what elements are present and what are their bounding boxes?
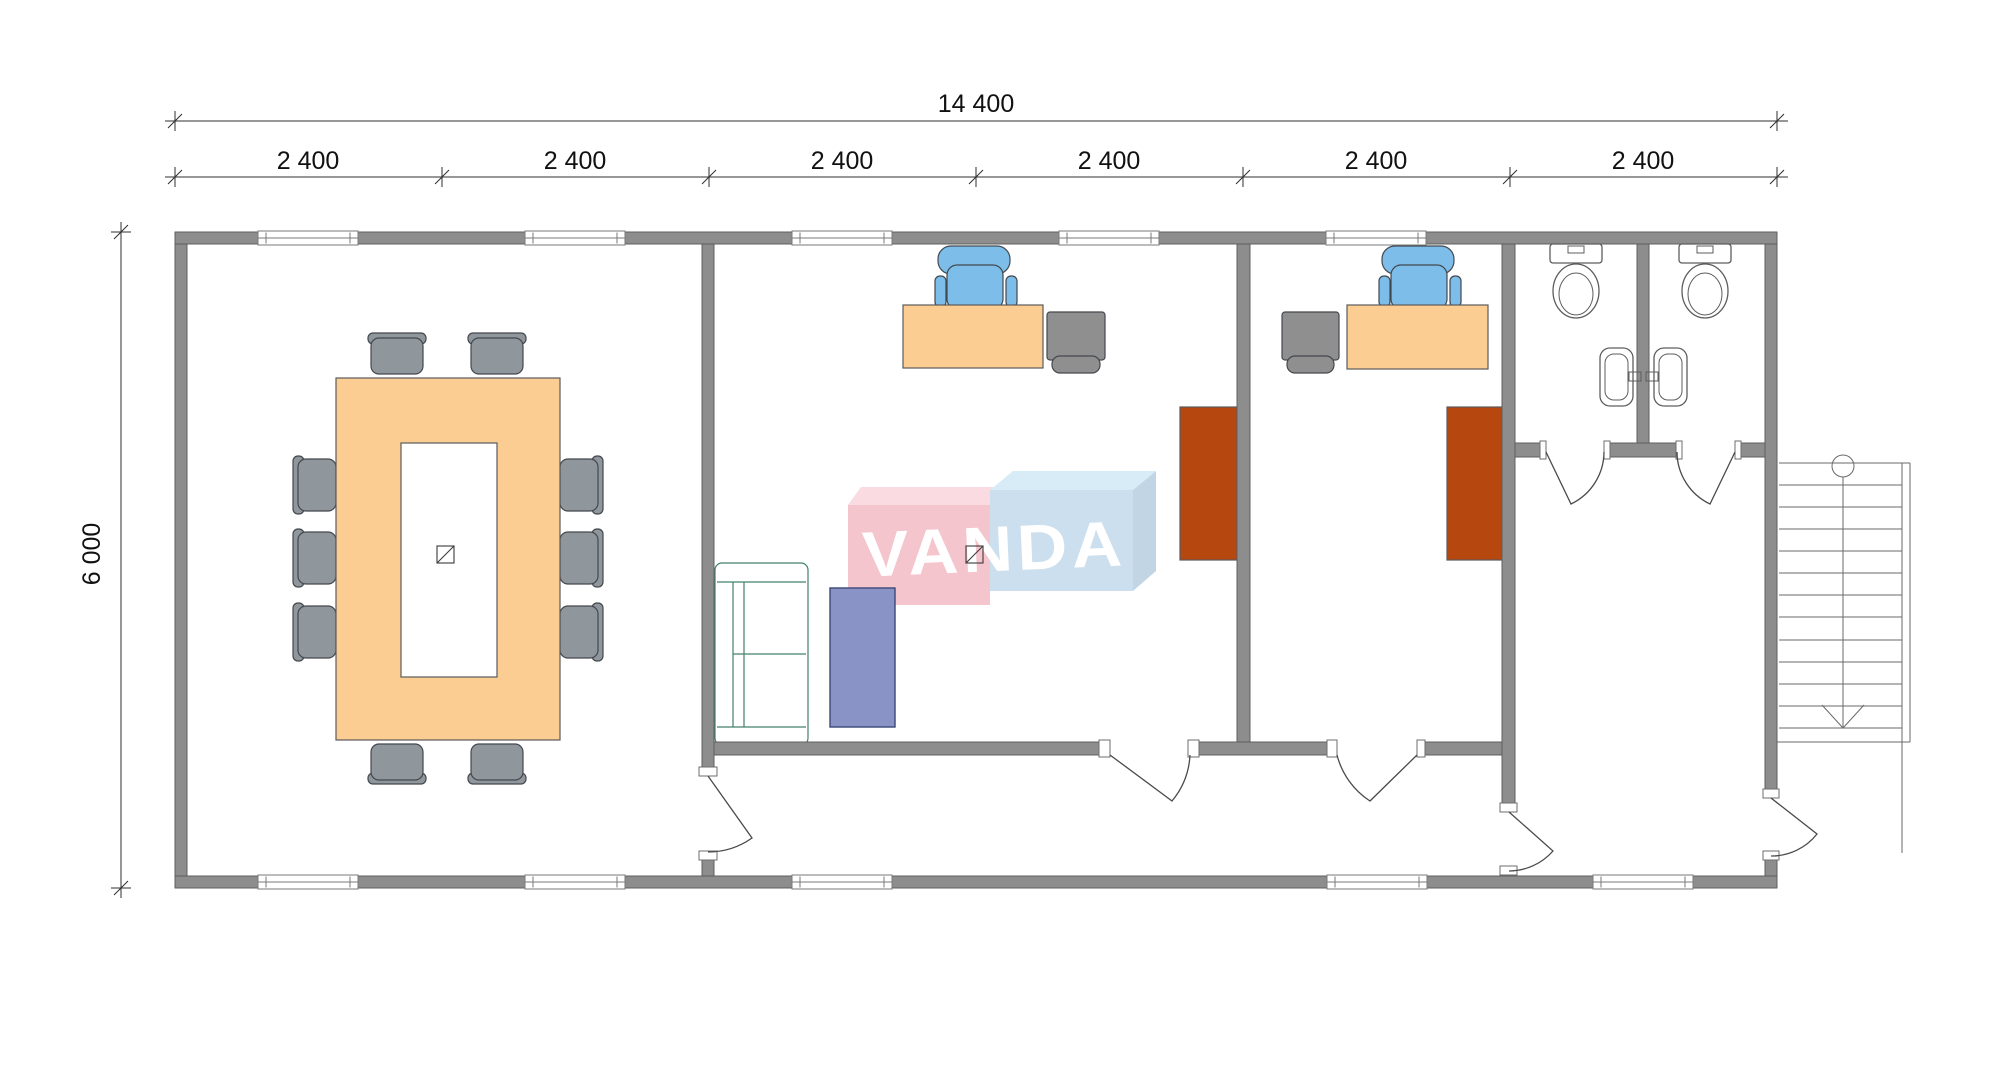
dimension-bay: 2 400 bbox=[544, 147, 607, 175]
corridor-wall bbox=[1425, 742, 1502, 755]
staircase bbox=[1777, 455, 1910, 853]
vanda-logo: VANDA bbox=[848, 471, 1156, 605]
task-chair-seat bbox=[947, 265, 1003, 309]
door-jamb bbox=[1763, 789, 1779, 798]
desk-office-1 bbox=[903, 305, 1043, 368]
chair-seat bbox=[560, 532, 598, 584]
exterior-wall-bottom bbox=[175, 876, 1777, 888]
stair-treads bbox=[1779, 463, 1902, 728]
chair-seat bbox=[371, 744, 423, 780]
door-conference bbox=[708, 776, 752, 852]
door-jamb bbox=[1500, 803, 1517, 812]
dimension-bay: 2 400 bbox=[811, 147, 874, 175]
corridor-wall bbox=[714, 742, 1099, 755]
wc-partition bbox=[1637, 244, 1649, 457]
chair-seat bbox=[471, 744, 523, 780]
wc-front-wall bbox=[1515, 443, 1540, 457]
door-exterior bbox=[1771, 798, 1817, 856]
task-chair-armrest bbox=[1006, 276, 1017, 307]
floor-plan-drawing: VANDA bbox=[0, 0, 2000, 1076]
door-jamb bbox=[1735, 441, 1741, 459]
drawer-unit-front bbox=[1052, 356, 1100, 373]
desks bbox=[903, 305, 1488, 369]
task-chair-armrest bbox=[1379, 276, 1390, 307]
stair-start-circle bbox=[1832, 455, 1854, 477]
chair-seat bbox=[560, 606, 598, 658]
dimension-total-width: 14 400 bbox=[938, 90, 1014, 118]
partition-conference-stub bbox=[702, 860, 714, 876]
logo-wordmark: VANDA bbox=[861, 507, 1128, 590]
toilet-bowl bbox=[1553, 264, 1599, 318]
door-jamb bbox=[1604, 441, 1610, 459]
coffee-table bbox=[830, 588, 895, 727]
sofa-cushion-lines bbox=[717, 582, 806, 727]
task-chair-armrest bbox=[1450, 276, 1461, 307]
partition-hallway bbox=[1502, 244, 1515, 803]
dimension-bay: 2 400 bbox=[1612, 147, 1675, 175]
sideboards bbox=[1180, 407, 1503, 560]
partition-office1-office2 bbox=[1237, 244, 1250, 742]
exterior-wall-left bbox=[175, 244, 187, 876]
door-jamb bbox=[699, 767, 717, 776]
door-office-2 bbox=[1337, 755, 1417, 801]
door-wc-2 bbox=[1677, 452, 1735, 504]
chair-seat bbox=[298, 532, 336, 584]
wc-front-wall bbox=[1610, 443, 1676, 457]
stair-direction-arrow bbox=[1822, 477, 1864, 728]
wc-front-wall bbox=[1741, 443, 1765, 457]
dimension-bay: 2 400 bbox=[1345, 147, 1408, 175]
dimension-bay: 2 400 bbox=[277, 147, 340, 175]
drawer-unit-office-2 bbox=[1282, 312, 1339, 360]
partition-conference bbox=[702, 244, 714, 767]
exterior-wall-right bbox=[1765, 244, 1777, 790]
sideboard-office-1 bbox=[1180, 407, 1237, 560]
chair-seat bbox=[298, 606, 336, 658]
desk-office-2 bbox=[1347, 305, 1488, 369]
sideboard-office-2 bbox=[1447, 407, 1503, 560]
conference-table-opening bbox=[401, 443, 497, 677]
chair-seat bbox=[371, 338, 423, 374]
door-jamb bbox=[1099, 740, 1110, 757]
logo-blue-side-face bbox=[1133, 471, 1156, 591]
task-chair-seat bbox=[1391, 265, 1447, 309]
logo-blue-top-face bbox=[990, 471, 1156, 490]
task-chairs bbox=[935, 246, 1461, 309]
conference-table bbox=[336, 378, 560, 740]
dimension-depth: 6 000 bbox=[78, 523, 106, 586]
chair-seat bbox=[471, 338, 523, 374]
chair-seat bbox=[298, 459, 336, 511]
toilet-bowl bbox=[1682, 264, 1728, 318]
logo-pink-top-face bbox=[848, 487, 1003, 505]
task-chair-armrest bbox=[935, 276, 946, 307]
door-office-1 bbox=[1110, 755, 1190, 801]
exterior-wall-right-stub bbox=[1765, 860, 1777, 876]
door-jamb bbox=[1327, 740, 1337, 757]
drawer-unit-office-1 bbox=[1047, 312, 1105, 360]
drawer-unit-front bbox=[1287, 356, 1334, 373]
chair-seat bbox=[560, 459, 598, 511]
door-hallway bbox=[1509, 812, 1553, 871]
exterior-wall-top bbox=[175, 232, 1777, 244]
corridor-wall bbox=[1199, 742, 1327, 755]
door-jamb bbox=[1417, 740, 1425, 757]
drawer-units bbox=[1047, 312, 1339, 373]
dimension-bay: 2 400 bbox=[1078, 147, 1141, 175]
door-jamb bbox=[1188, 740, 1199, 757]
sofa bbox=[715, 563, 808, 745]
door-wc-1 bbox=[1546, 452, 1604, 504]
door-jamb bbox=[1540, 441, 1546, 459]
floor-plan-page: VANDA bbox=[0, 0, 2000, 1076]
